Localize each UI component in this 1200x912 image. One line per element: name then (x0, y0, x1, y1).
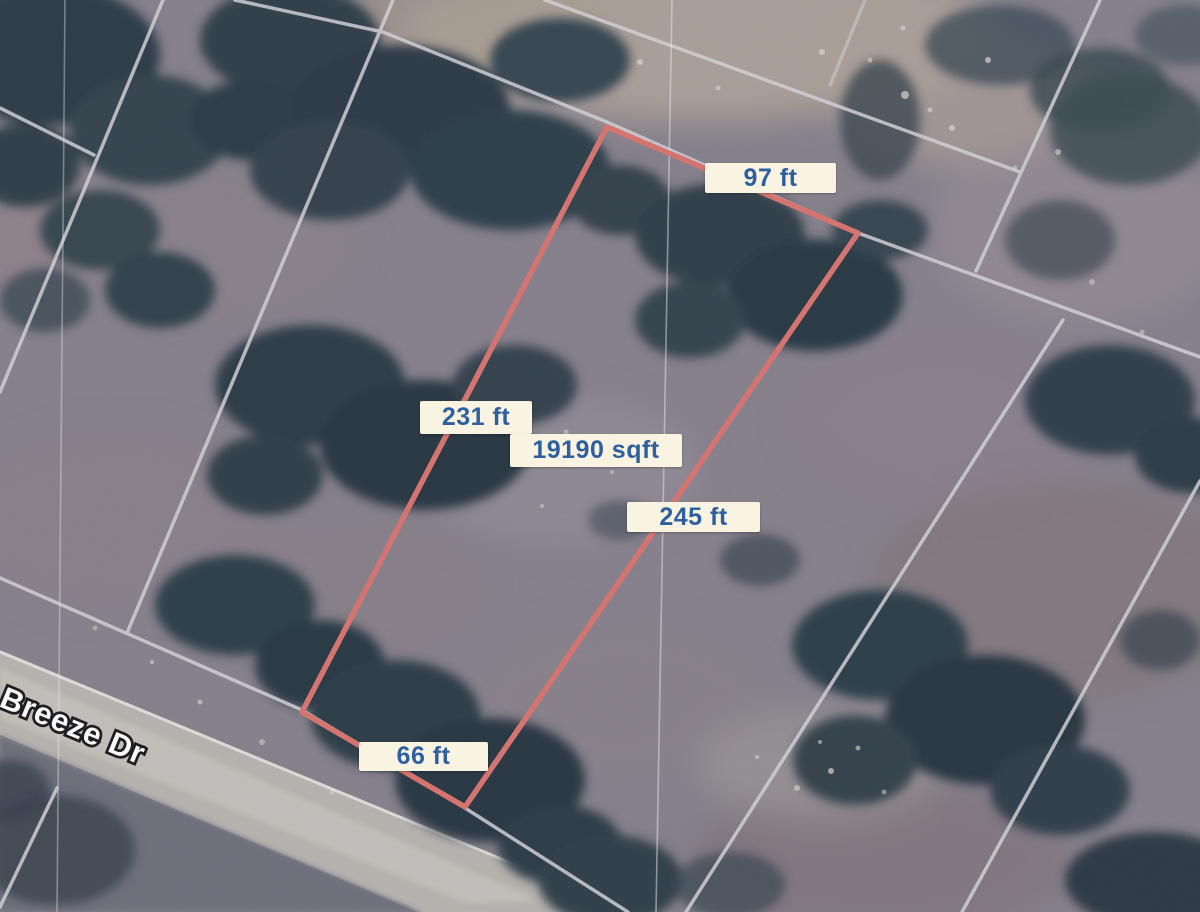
parcel-area-label: 19190 sqft (510, 434, 682, 467)
dimension-label-bottom: 66 ft (359, 742, 488, 771)
dimension-label-left: 231 ft (420, 401, 532, 434)
satellite-map-view[interactable]: Breeze Dr 97 ft 231 ft 19190 sqft 245 ft… (0, 0, 1200, 912)
dimension-label-right: 245 ft (627, 502, 760, 532)
dimension-label-top: 97 ft (705, 163, 836, 193)
